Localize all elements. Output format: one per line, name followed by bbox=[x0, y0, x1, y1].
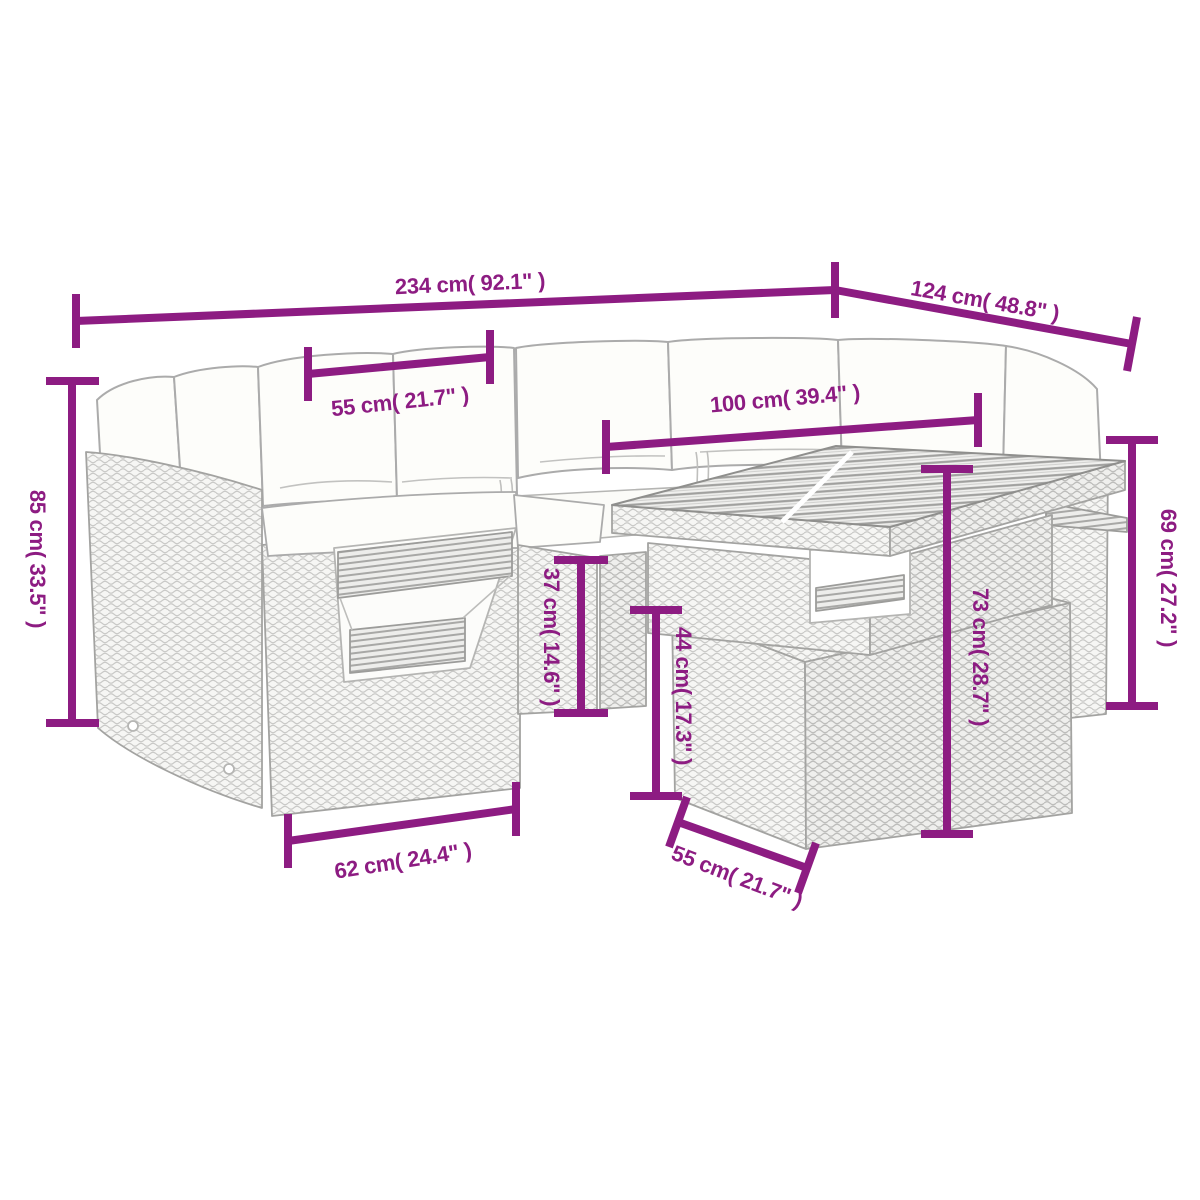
sofa-left-arm-panel bbox=[86, 452, 262, 808]
sofa-foot bbox=[128, 721, 138, 731]
dim-label-tray-height: 37 cm( 14.6" ) bbox=[538, 568, 564, 706]
sofa-foot bbox=[224, 764, 234, 774]
left-corner-sofa bbox=[86, 452, 520, 816]
dim-label-table-height: 73 cm( 28.7" ) bbox=[967, 588, 993, 726]
dim-label-back-height: 85 cm( 33.5" ) bbox=[24, 490, 50, 628]
furniture-line-art bbox=[0, 0, 1200, 1200]
middle-seat-side-face bbox=[600, 552, 646, 709]
middle-seat-cushion bbox=[514, 495, 604, 548]
dimension-diagram: 234 cm( 92.1" ) 124 cm( 48.8" ) 85 cm( 3… bbox=[0, 0, 1200, 1200]
dim-label-tabletop-side-height: 69 cm( 27.2" ) bbox=[1155, 509, 1181, 647]
dim-label-base-height: 44 cm( 17.3" ) bbox=[670, 627, 696, 765]
cushion-back-2 bbox=[393, 347, 517, 499]
